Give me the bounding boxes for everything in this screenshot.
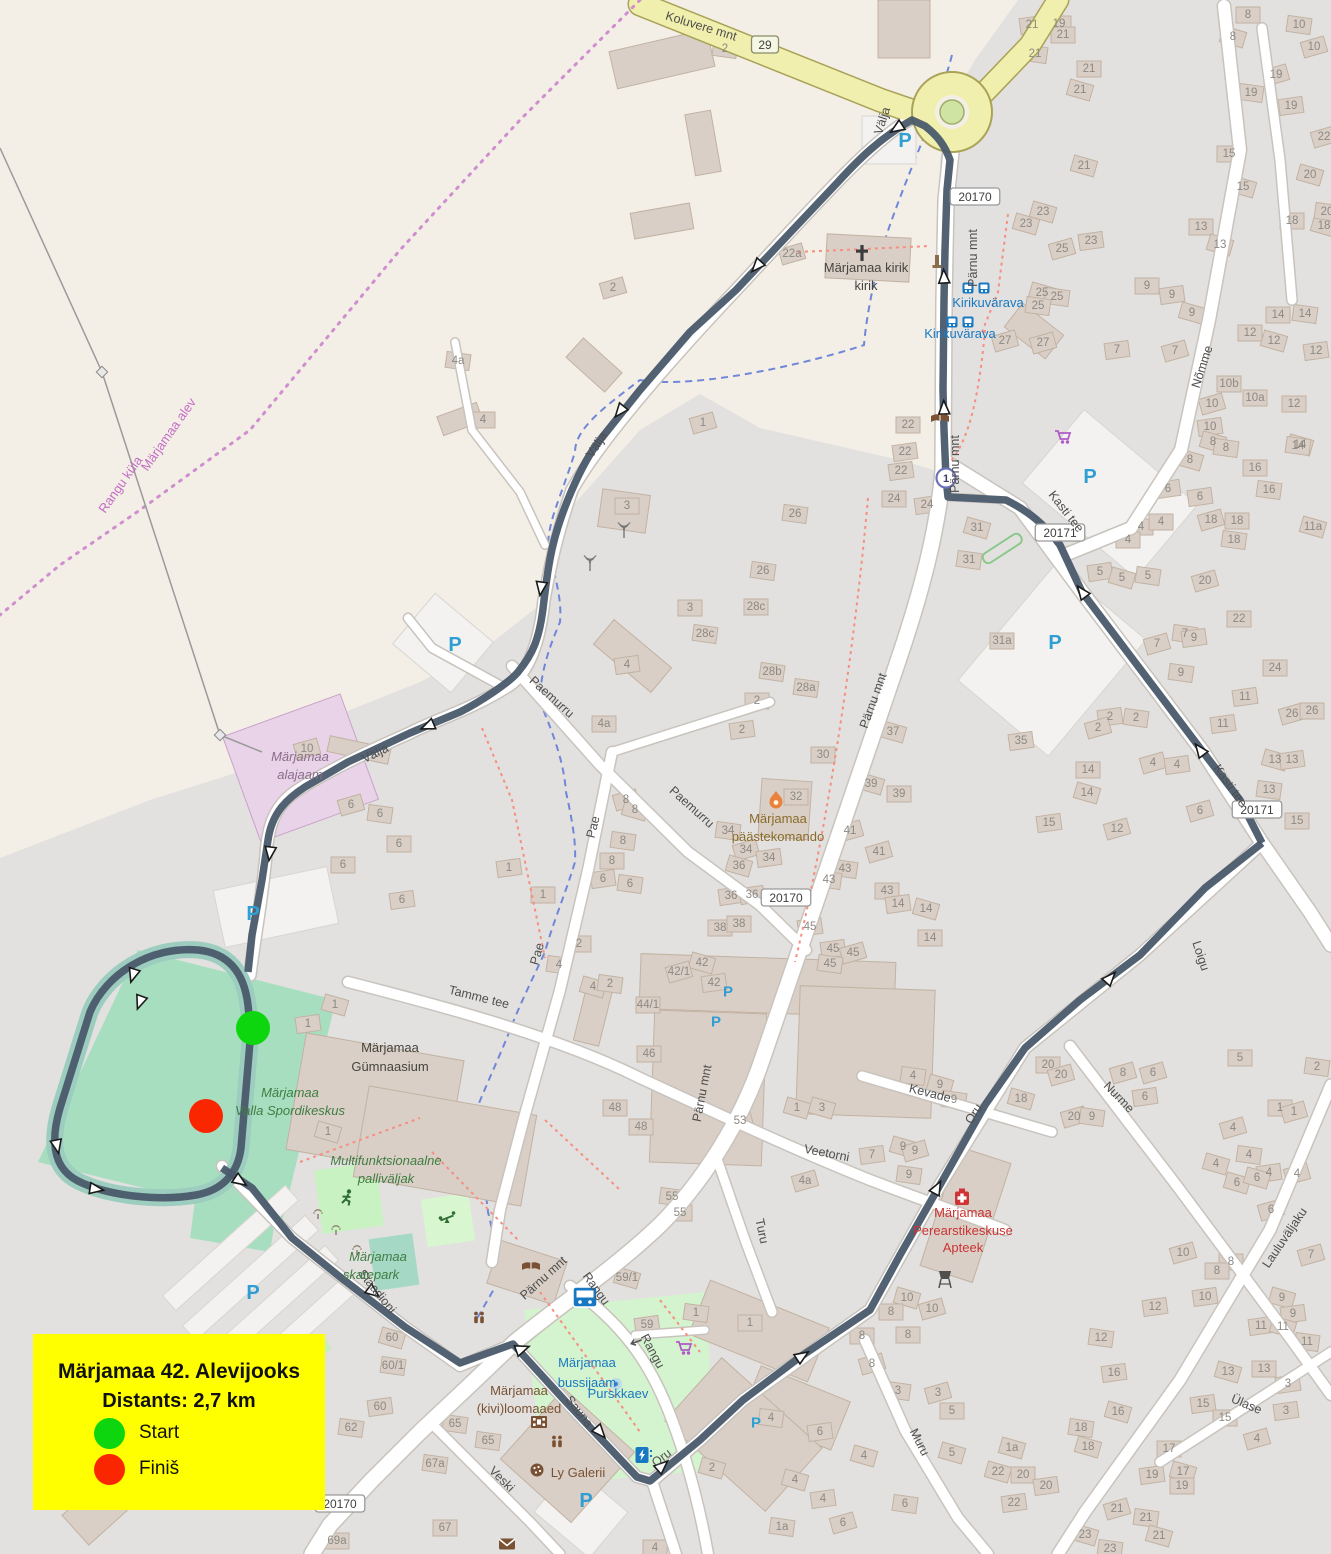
route-badge-label: 20170 [958, 190, 992, 204]
house-number: 9 [1290, 1308, 1296, 1320]
house-number: 2 [722, 43, 728, 55]
house-number: 15 [1223, 148, 1236, 160]
house-number: 34 [722, 825, 735, 837]
house-number: 9 [1178, 667, 1184, 679]
house-number: 4 [1174, 759, 1181, 771]
house-number: 14 [924, 932, 937, 944]
house-number: 18 [1231, 515, 1244, 527]
house-number: 12 [1244, 327, 1257, 339]
house-number: 15 [1237, 181, 1250, 193]
house-number: 13 [1263, 784, 1276, 796]
house-number: 60 [374, 1401, 387, 1413]
house-number: 9 [1189, 307, 1195, 319]
house-number: 23 [1020, 218, 1033, 230]
house-number: 1 [1291, 1106, 1297, 1118]
place-label: alajaam [277, 767, 323, 782]
house-number: 10 [1199, 1291, 1212, 1303]
house-number: 8 [609, 855, 615, 867]
house-number: 1a [776, 1521, 789, 1533]
house-number: 9 [1089, 1111, 1095, 1123]
house-number: 38 [714, 922, 727, 934]
house-number: 60 [386, 1332, 399, 1344]
house-number: 22 [899, 446, 912, 458]
house-number: 3 [687, 602, 693, 614]
house-number: 14 [1081, 787, 1094, 799]
place-label: Valla Spordikeskus [235, 1103, 346, 1118]
parking-icon: P [1048, 632, 1061, 654]
place-label: Multifunktsionaalne [330, 1153, 441, 1168]
parking-icon: P [1083, 466, 1096, 488]
house-number: 30 [817, 749, 830, 761]
house-number: 12 [1288, 398, 1301, 410]
house-number: 13 [1195, 221, 1208, 233]
parking-icon: P [898, 130, 911, 152]
house-number: 1 [506, 862, 512, 874]
house-number: 15 [1219, 1412, 1232, 1424]
house-number: 26 [1286, 708, 1299, 720]
house-number: 20 [1321, 206, 1331, 218]
house-number: 45 [827, 943, 840, 955]
house-number: 12 [1149, 1301, 1162, 1313]
house-number: 37 [887, 726, 900, 738]
place-label: Perearstikeskuse [913, 1223, 1013, 1238]
house-number: 60/1 [382, 1360, 404, 1372]
house-number: 6 [1254, 1172, 1260, 1184]
house-number: 16 [1263, 484, 1276, 496]
house-number: 6 [1197, 805, 1203, 817]
route-badge-label: 20171 [1240, 803, 1274, 817]
start-dot-icon [94, 1418, 125, 1449]
house-number: 9 [900, 1141, 906, 1153]
house-number: 31 [963, 554, 976, 566]
start-marker [236, 1011, 270, 1045]
house-number: 7 [1172, 345, 1178, 357]
house-number: 17 [1163, 1443, 1176, 1455]
house-number: 11 [1255, 1320, 1267, 1332]
parking-icon: P [723, 983, 733, 1000]
house-number: 7 [1308, 1249, 1314, 1261]
house-number: 9 [951, 1094, 957, 1106]
house-number: 2 [576, 938, 582, 950]
house-number: 10 [901, 1292, 914, 1304]
house-number: 24 [1269, 662, 1282, 674]
place-label: Märjamaa [361, 1040, 420, 1055]
parking-icon: P [579, 1490, 592, 1512]
house-number: 18 [1318, 220, 1331, 232]
house-number: 42/1 [668, 966, 690, 978]
house-number: 4 [1246, 1149, 1253, 1161]
house-number: 36 [746, 889, 759, 901]
house-number: 21 [1078, 160, 1091, 172]
house-number: 28c [747, 601, 766, 613]
house-number: 6 [902, 1498, 908, 1510]
place-label: Märjamaa [934, 1205, 993, 1220]
house-number: 6 [817, 1426, 823, 1438]
house-number: 18 [1286, 215, 1299, 227]
house-number: 1 [332, 999, 338, 1011]
house-number: 19 [1285, 100, 1298, 112]
street-label: Pärnu mnt [948, 435, 962, 493]
house-number: 48 [609, 1102, 622, 1114]
legend-title: Märjamaa 42. Alevijooks [58, 1360, 300, 1384]
house-number: 19 [1176, 1480, 1189, 1492]
house-number: 20 [1017, 1469, 1030, 1481]
house-number: 59 [641, 1319, 654, 1331]
house-number: 4 [480, 414, 487, 426]
house-number: 26 [1306, 705, 1319, 717]
house-number: 2 [754, 695, 760, 707]
place-label: Purskkaev [588, 1386, 649, 1401]
house-number: 21 [1026, 19, 1039, 31]
house-number: 4 [1150, 757, 1157, 769]
house-number: 4 [1266, 1167, 1273, 1179]
house-number: 5 [949, 1405, 955, 1417]
house-number: 46 [643, 1048, 656, 1060]
house-number: 8 [888, 1306, 894, 1318]
house-number: 2 [739, 724, 745, 736]
parking-icon: P [751, 1414, 761, 1431]
house-number: 11 [1217, 718, 1229, 730]
house-number: 65 [449, 1418, 462, 1430]
place-label: kirik [854, 278, 878, 293]
house-number: 36 [725, 890, 738, 902]
place-label: Märjamaa [261, 1085, 319, 1100]
place-label: Ly Galerii [551, 1465, 606, 1480]
map-canvas[interactable]: 2920170201702017020171201711Koluvere mnt… [0, 0, 1331, 1554]
house-number: 21 [1029, 48, 1042, 60]
house-number: 23 [1079, 1529, 1092, 1541]
house-number: 10 [926, 1303, 939, 1315]
house-number: 16 [1249, 462, 1262, 474]
palette-icon [531, 1464, 544, 1477]
house-number: 24 [921, 499, 934, 511]
house-number: 13 [1269, 754, 1282, 766]
film-icon [531, 1416, 547, 1428]
house-number: 39 [865, 778, 878, 790]
house-number: 10 [1177, 1247, 1190, 1259]
house-number: 8 [1210, 436, 1216, 448]
house-number: 4a [452, 355, 465, 367]
house-number: 39 [893, 788, 906, 800]
house-number: 4 [624, 659, 631, 671]
house-number: 7 [1182, 628, 1188, 640]
mail-icon [499, 1539, 515, 1550]
house-number: 22 [1318, 131, 1331, 143]
house-number: 43 [839, 863, 852, 875]
house-number: 25 [1051, 291, 1064, 303]
house-number: 6 [627, 878, 633, 890]
house-number: 38 [733, 918, 746, 930]
house-number: 13 [1258, 1363, 1271, 1375]
house-number: 5 [1237, 1052, 1243, 1064]
house-number: 11 [1301, 1336, 1313, 1348]
house-number: 28c [696, 628, 715, 640]
house-number: 43 [881, 885, 894, 897]
house-number: 8 [632, 804, 638, 816]
house-number: 13 [1222, 1366, 1235, 1378]
house-number: 62 [345, 1422, 358, 1434]
house-number: 6 [1150, 1067, 1156, 1079]
place-label: Märjamaa [349, 1249, 407, 1264]
house-number: 8 [1223, 442, 1229, 454]
place-label: Märjamaa [749, 811, 808, 826]
house-number: 9 [937, 1079, 943, 1091]
legend-distance: Distants: 2,7 km [102, 1390, 255, 1413]
house-number: 9 [1144, 280, 1150, 292]
house-number: 8 [869, 1358, 875, 1370]
house-number: 11 [1239, 691, 1251, 703]
street-label: Pärnu mnt [966, 229, 980, 287]
house-number: 67 [439, 1522, 452, 1534]
house-number: 8 [859, 1330, 865, 1342]
house-number: 24 [888, 493, 901, 505]
house-number: 8 [1120, 1067, 1126, 1079]
house-number: 7 [1154, 638, 1160, 650]
house-number: 6 [396, 838, 402, 850]
house-number: 1 [700, 417, 706, 429]
house-number: 1 [305, 1018, 311, 1030]
house-number: 22 [902, 419, 915, 431]
house-number: 21 [1057, 29, 1070, 41]
house-number: 18 [1015, 1093, 1028, 1105]
place-label: (kivi)loomaaed [477, 1401, 562, 1416]
house-number: 4 [556, 959, 563, 971]
house-number: 35 [1015, 735, 1028, 747]
house-number: 8 [1228, 1256, 1234, 1268]
house-number: 28b [762, 666, 781, 678]
house-number: 16 [1108, 1367, 1121, 1379]
house-number: 22 [992, 1466, 1005, 1478]
house-number: 4 [1294, 1168, 1301, 1180]
house-number: 5 [1145, 570, 1151, 582]
house-number: 9 [1169, 289, 1175, 301]
house-number: 1a [1006, 1442, 1019, 1454]
house-number: 12 [1095, 1332, 1108, 1344]
house-number: 17 [1177, 1466, 1190, 1478]
house-number: 2 [1107, 711, 1113, 723]
house-number: 4 [590, 981, 597, 993]
house-number: 9 [1191, 632, 1197, 644]
house-number: 45 [847, 947, 860, 959]
house-number: 6 [340, 859, 346, 871]
place-label: palliväljak [357, 1171, 416, 1186]
house-number: 4 [792, 1474, 799, 1486]
house-number: 41 [844, 825, 857, 837]
house-number: 8 [1245, 9, 1251, 21]
house-number: 6 [1142, 1091, 1148, 1103]
legend-start-row: Start [94, 1418, 264, 1449]
house-number: 15 [1043, 817, 1056, 829]
route-badge-label: 29 [758, 38, 772, 52]
house-number: 13 [1286, 754, 1299, 766]
house-number: 18 [1228, 534, 1241, 546]
house-number: 22 [1008, 1497, 1021, 1509]
house-number: 55 [674, 1207, 687, 1219]
house-number: 48 [635, 1121, 648, 1133]
house-number: 20 [1055, 1069, 1068, 1081]
legend-finish-label: Finiš [139, 1458, 179, 1480]
house-number: 65 [482, 1435, 495, 1447]
house-number: 5 [1097, 566, 1103, 578]
house-number: 6 [1165, 483, 1171, 495]
house-number: 4 [652, 1542, 659, 1554]
house-number: 6 [1197, 491, 1203, 503]
house-number: 4 [1230, 1122, 1237, 1134]
house-number: 25 [1032, 300, 1045, 312]
house-number: 14 [1082, 764, 1095, 776]
house-number: 25 [1036, 287, 1049, 299]
place-label: Märjamaa kirik [824, 260, 909, 275]
finish-dot-icon [94, 1454, 125, 1485]
house-number: 10 [1293, 19, 1306, 31]
house-number: 10 [1206, 398, 1219, 410]
parking-icon: P [246, 903, 259, 925]
house-number: 3 [819, 1102, 825, 1114]
house-number: 4 [1138, 521, 1145, 533]
house-number: 53 [734, 1115, 747, 1127]
house-number: 28a [796, 682, 816, 694]
place-label: Märjamaa [558, 1355, 617, 1370]
house-number: 6 [399, 894, 405, 906]
house-number: 7 [869, 1149, 875, 1161]
house-number: 23 [1085, 235, 1098, 247]
house-number: 8 [1214, 1265, 1220, 1277]
house-number: 4 [768, 1412, 775, 1424]
house-number: 15 [1291, 815, 1304, 827]
place-label: Kirikuvärava [924, 326, 996, 341]
house-number: 14 [1272, 309, 1285, 321]
house-number: 22a [782, 248, 802, 260]
roundabout [912, 72, 992, 152]
house-number: 31 [971, 522, 984, 534]
house-number: 21 [1083, 63, 1096, 75]
place-label: päästekomando [732, 829, 825, 844]
house-number: 3 [624, 500, 630, 512]
house-number: 1 [1277, 1102, 1283, 1114]
house-number: 5 [949, 1447, 955, 1459]
house-number: 10a [1245, 392, 1265, 404]
house-number: 12 [1310, 345, 1323, 357]
house-number: 69a [327, 1535, 347, 1547]
house-number: 4 [1254, 1433, 1261, 1445]
house-number: 36 [733, 860, 746, 872]
house-number: 19 [1146, 1469, 1159, 1481]
house-number: 20 [1068, 1111, 1081, 1123]
house-number: 10b [1219, 378, 1238, 390]
house-number: 15 [1197, 1398, 1210, 1410]
house-number: 2 [610, 282, 616, 294]
house-number: 21 [1074, 84, 1087, 96]
house-number: 22 [895, 465, 908, 477]
house-number: 59/1 [616, 1272, 638, 1284]
house-number: 45 [804, 921, 817, 933]
house-number: 34 [740, 844, 753, 856]
house-number: 4 [1158, 516, 1165, 528]
house-number: 2 [1314, 1061, 1320, 1073]
house-number: 20 [1199, 575, 1212, 587]
finish-marker [189, 1099, 223, 1133]
house-number: 14 [1292, 440, 1305, 452]
busstop-icon [979, 283, 990, 294]
house-number: 11a [1304, 521, 1323, 533]
house-number: 31a [992, 635, 1012, 647]
house-number: 45 [824, 958, 837, 970]
house-number: 3 [1285, 1378, 1291, 1390]
house-number: 55 [666, 1191, 679, 1203]
house-number: 3 [935, 1387, 941, 1399]
house-number: 8 [620, 835, 626, 847]
house-number: 1 [747, 1317, 753, 1329]
house-number: 21 [1140, 1512, 1153, 1524]
place-label: Kirikuvärava [952, 295, 1024, 310]
house-number: 67a [425, 1458, 445, 1470]
legend-start-label: Start [139, 1422, 179, 1444]
route-badge-label: 20170 [769, 891, 803, 905]
house-number: 2 [1095, 722, 1101, 734]
house-number: 2 [709, 1462, 715, 1474]
house-number: 4 [1213, 1158, 1220, 1170]
house-number: 12 [1111, 823, 1124, 835]
place-label: skatepark [343, 1267, 401, 1282]
house-number: 21 [1111, 1503, 1124, 1515]
place-label: Apteek [943, 1240, 984, 1255]
place-label: Gümnaasium [351, 1059, 428, 1074]
house-number: 10 [1308, 41, 1321, 53]
house-number: 5 [1119, 572, 1125, 584]
route-badge-label: 20170 [323, 1497, 357, 1511]
house-number: 23 [1037, 206, 1050, 218]
parking-icon: P [246, 1282, 259, 1304]
house-number: 3 [895, 1385, 901, 1397]
house-number: 16 [1112, 1406, 1125, 1418]
house-number: 3 [1283, 1405, 1289, 1417]
legend-finish-row: Finiš [94, 1454, 264, 1485]
house-number: 9 [1279, 1292, 1285, 1304]
house-number: 6 [1234, 1177, 1240, 1189]
house-number: 20 [1040, 1480, 1053, 1492]
house-number: 20 [1304, 169, 1317, 181]
house-number: 18 [1205, 514, 1218, 526]
house-number: 11 [1277, 1321, 1289, 1333]
house-number: 41 [873, 846, 886, 858]
house-number: 14 [1299, 308, 1312, 320]
house-number: 4a [598, 718, 611, 730]
house-number: 4 [1125, 534, 1132, 546]
house-number: 1 [794, 1102, 800, 1114]
house-number: 1 [325, 1126, 331, 1138]
house-number: 25 [1056, 243, 1069, 255]
house-number: 2 [1133, 712, 1139, 724]
house-number: 10 [1204, 421, 1217, 433]
house-number: 9 [912, 1145, 918, 1157]
map-screenshot: 2920170201702017020171201711Koluvere mnt… [0, 0, 1331, 1554]
house-number: 32 [790, 791, 803, 803]
house-number: 19 [1270, 69, 1283, 81]
house-number: 6 [348, 799, 354, 811]
house-number: 4 [861, 1450, 868, 1462]
house-number: 10 [301, 743, 314, 755]
house-number: 1 [693, 1307, 699, 1319]
house-number: 42 [708, 977, 721, 989]
house-number: 8 [1187, 454, 1193, 466]
house-number: 21 [1153, 1530, 1166, 1542]
house-number: 27 [999, 335, 1012, 347]
house-number: 26 [789, 508, 802, 520]
house-number: 27 [1037, 337, 1050, 349]
house-number: 14 [920, 903, 933, 915]
house-number: 23 [1104, 1543, 1117, 1554]
place-label: Märjamaa [490, 1383, 549, 1398]
